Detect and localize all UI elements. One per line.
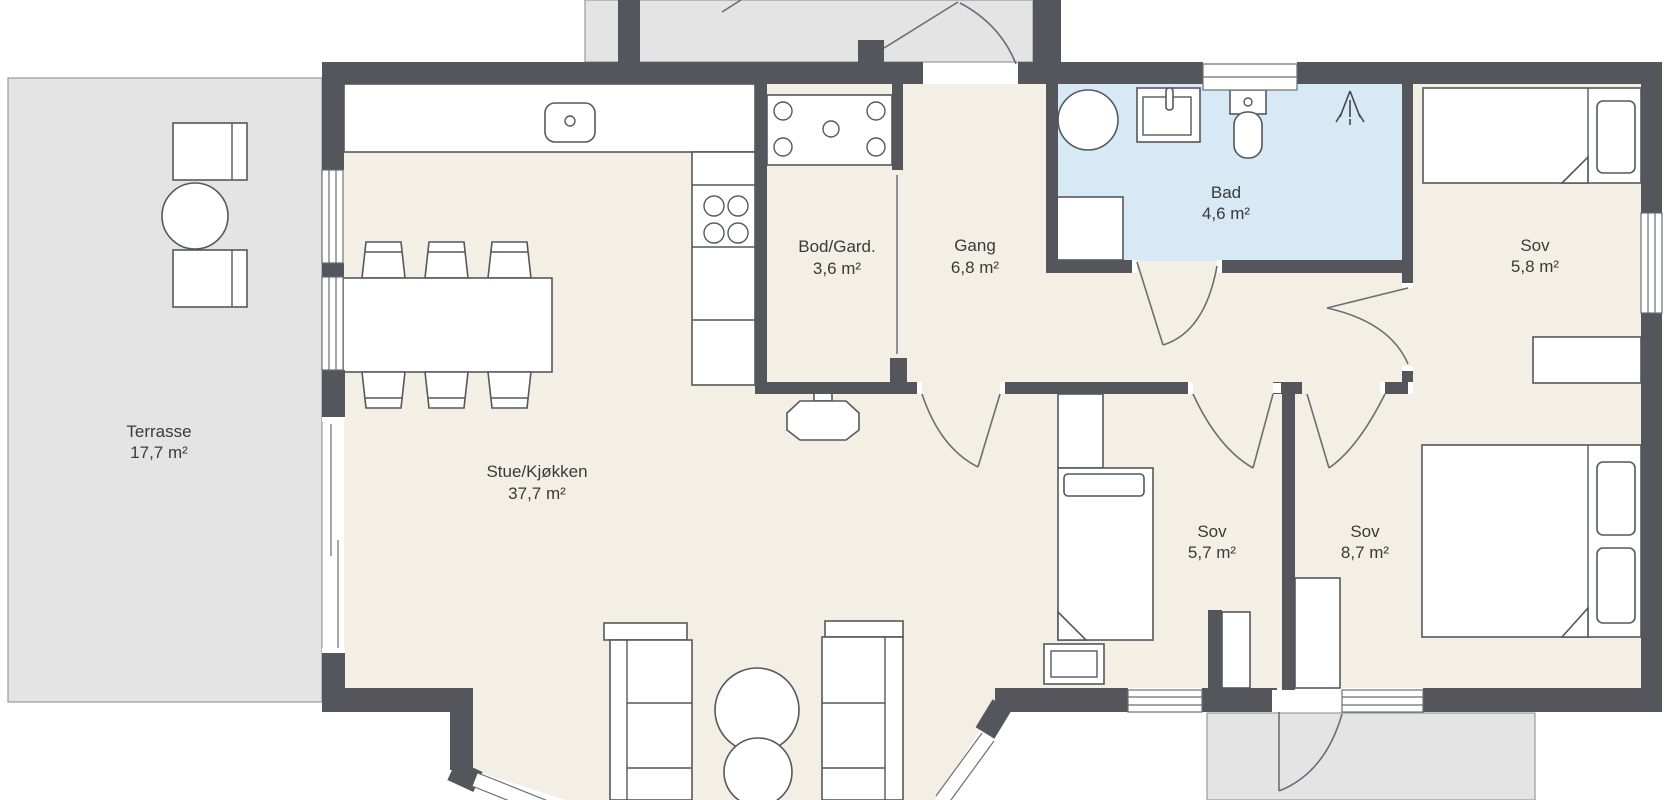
sliding-door-icon	[893, 170, 902, 358]
room-label-sov-nord: Sov	[1520, 236, 1550, 255]
rear-porch-area	[1207, 713, 1535, 800]
terrace-chair-icon	[173, 123, 247, 180]
washing-machine-icon	[1057, 197, 1123, 260]
room-area-bod-gard: 3,6 m²	[813, 259, 862, 278]
room-area-bad: 4,6 m²	[1202, 204, 1251, 223]
room-label-terrasse: Terrasse	[126, 422, 191, 441]
room-area-sov-nord: 5,8 m²	[1511, 257, 1560, 276]
room-area-sov-sor: 8,7 m²	[1341, 543, 1390, 562]
pillow-icon	[1597, 462, 1635, 535]
window-icon	[1342, 690, 1423, 712]
pillow-icon	[1597, 548, 1635, 623]
entry-door-post	[858, 40, 884, 70]
floor-plan-svg: Terrasse 17,7 m² Stue/Kjøkken 37,7 m² Bo…	[0, 0, 1670, 800]
pillow-icon	[1597, 101, 1635, 173]
entry-porch-area	[585, 0, 1033, 62]
room-label-bad: Bad	[1211, 183, 1241, 202]
bathroom-sink-icon	[1137, 88, 1200, 142]
window-icon	[1203, 64, 1297, 90]
floor-plan: Terrasse 17,7 m² Stue/Kjøkken 37,7 m² Bo…	[0, 0, 1670, 800]
double-bed-south	[1422, 445, 1641, 637]
wardrobe-icon	[1058, 394, 1103, 468]
window-icon	[1128, 690, 1202, 712]
pouf-icon	[724, 738, 792, 800]
room-area-gang: 6,8 m²	[951, 258, 1000, 277]
kitchen-sink-icon	[545, 103, 595, 142]
wardrobe-icon	[1295, 578, 1340, 688]
dresser-middle	[1044, 644, 1104, 684]
window-icon	[322, 277, 343, 370]
dresser-icon	[1533, 337, 1641, 383]
dining-table-icon	[343, 278, 552, 372]
single-bed-north	[1423, 88, 1641, 183]
room-area-stue-kjokken: 37,7 m²	[508, 484, 566, 503]
room-label-sov-sor: Sov	[1350, 522, 1380, 541]
dining-set	[343, 242, 552, 408]
room-area-sov-midt: 5,7 m²	[1188, 543, 1237, 562]
room-label-gang: Gang	[954, 236, 996, 255]
shelf-unit-left	[604, 623, 692, 800]
terrace-chair-icon	[173, 250, 247, 307]
pillow-icon	[1064, 474, 1144, 496]
round-basin-icon	[1058, 90, 1118, 150]
terrace-table-icon	[162, 183, 228, 249]
sliding-terrace-door	[324, 422, 343, 650]
storage-unit	[767, 95, 892, 165]
toilet-icon	[1230, 90, 1266, 158]
room-label-bod-gard: Bod/Gard.	[798, 237, 876, 256]
room-label-sov-midt: Sov	[1197, 522, 1227, 541]
shelf-unit-right	[822, 621, 903, 800]
room-label-stue-kjokken: Stue/Kjøkken	[486, 462, 587, 481]
window-icon	[322, 170, 343, 263]
room-area-terrasse: 17,7 m²	[130, 443, 188, 462]
window-icon	[1641, 213, 1662, 313]
terrace-area	[8, 78, 322, 702]
closet-niche-unit	[1222, 612, 1250, 688]
